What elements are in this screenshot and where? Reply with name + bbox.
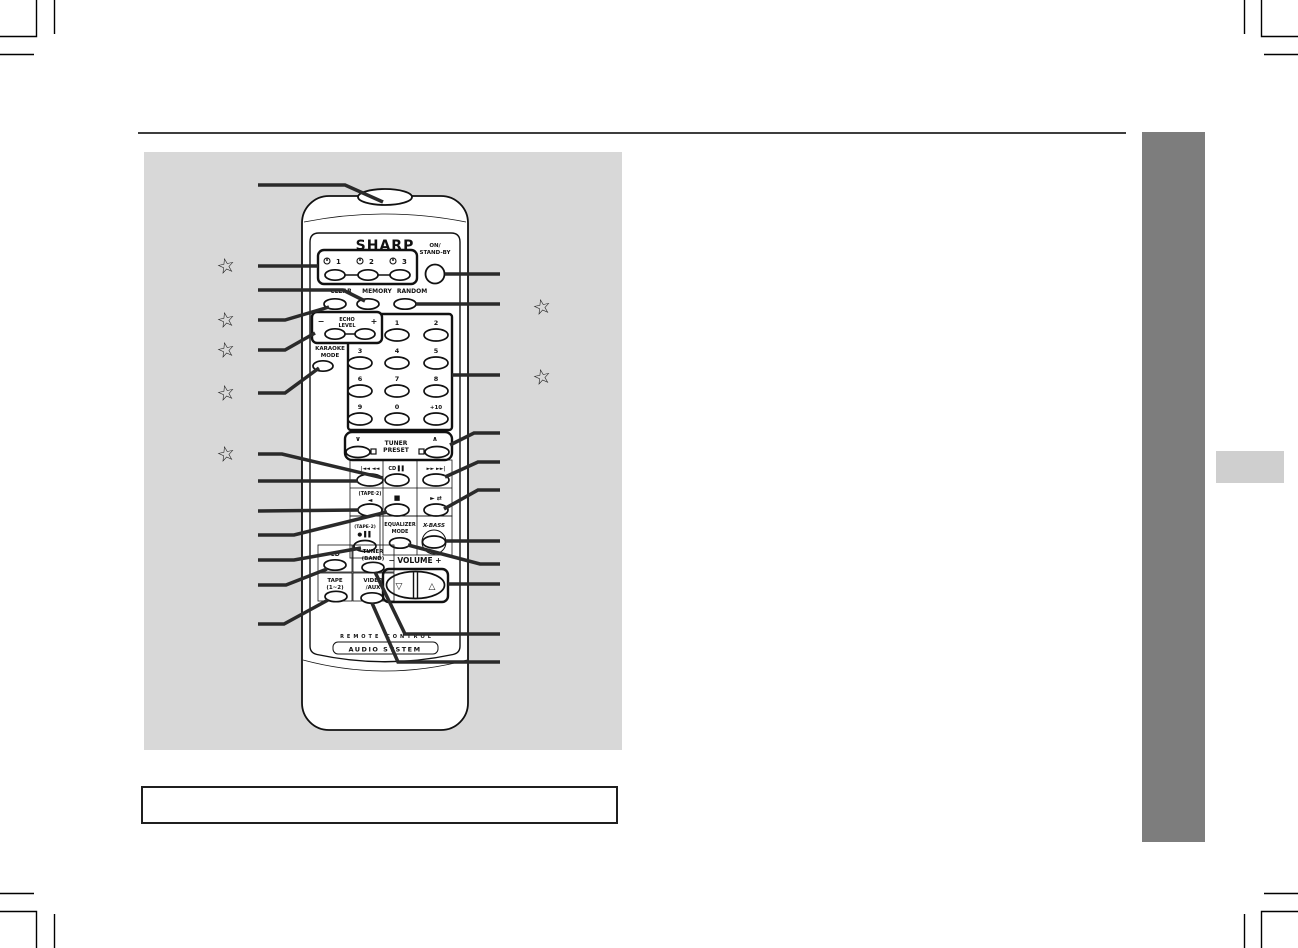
star-marker: ☆ xyxy=(214,336,237,363)
timer-2-label: 2 xyxy=(369,258,374,266)
timer-1-label: 1 xyxy=(336,258,341,266)
tuner-preset-label-line1: TUNER xyxy=(385,440,408,447)
star-marker: ☆ xyxy=(214,440,237,467)
cd-source-button[interactable] xyxy=(324,560,346,570)
crop-mark-top-right xyxy=(1245,0,1298,55)
tuner-preset-label-line2: PRESET xyxy=(383,447,410,454)
numpad-5-label: 5 xyxy=(434,347,439,355)
timer-1-button[interactable] xyxy=(325,270,345,280)
numpad-1-button[interactable] xyxy=(385,329,409,341)
timer-3-button[interactable] xyxy=(390,270,410,280)
tuner-source-label-line1: TUNER xyxy=(363,549,385,555)
stop-button[interactable] xyxy=(385,504,409,516)
caption-box xyxy=(141,786,618,824)
power-label-line2: STAND-BY xyxy=(420,250,452,256)
star-marker: ☆ xyxy=(214,252,237,279)
volume-down-triangle[interactable]: ▽ xyxy=(396,582,403,592)
record-pause-label: ● ▌▌ xyxy=(357,530,372,538)
ir-transmitter-bump xyxy=(358,189,412,205)
preset-up-notch xyxy=(419,449,424,454)
reverse-play-label: ◄ xyxy=(368,497,373,504)
star-marker: ☆ xyxy=(530,363,553,390)
video-aux-button[interactable] xyxy=(361,593,383,603)
echo-plus-label: + xyxy=(371,317,378,326)
power-label-line1: ON/ xyxy=(429,243,441,249)
numpad-6-label: 6 xyxy=(358,375,363,383)
stop-label: ■ xyxy=(394,494,401,502)
random-button[interactable] xyxy=(394,299,416,309)
tuner-source-label-line2: (BAND) xyxy=(362,556,385,562)
tape-source-button[interactable] xyxy=(325,591,347,601)
cd-pause-button[interactable] xyxy=(385,474,409,486)
preset-up-chevron: ∧ xyxy=(432,435,438,443)
star-marker: ☆ xyxy=(214,379,237,406)
equalizer-mode-button[interactable] xyxy=(390,538,411,548)
record-tape2-label: (TAPE·2) xyxy=(354,524,376,530)
numpad-4-button[interactable] xyxy=(385,357,409,369)
echo-up-button[interactable] xyxy=(355,329,375,339)
page-edge-tab xyxy=(1216,451,1284,483)
echo-down-button[interactable] xyxy=(325,329,345,339)
numpad-6-button[interactable] xyxy=(348,385,372,397)
echo-label-line2: LEVEL xyxy=(338,323,356,329)
numpad-3-button[interactable] xyxy=(348,357,372,369)
preset-down-chevron: ∨ xyxy=(355,435,361,443)
xbass-button[interactable] xyxy=(423,536,446,548)
equalizer-label-line1: EQUALIZER xyxy=(384,522,416,528)
skip-down-label: |◄◄ ◄◄ xyxy=(361,466,380,472)
remote-diagram-panel: SHARP 1 2 3 ON/ STAND-BY CLEAR xyxy=(144,152,622,750)
power-button[interactable] xyxy=(426,265,445,284)
volume-up-triangle[interactable]: △ xyxy=(429,582,436,592)
numpad-0-button[interactable] xyxy=(385,413,409,425)
tape-source-label-line2: (1~2) xyxy=(326,585,344,591)
skip-up-label: ►► ►►| xyxy=(427,466,446,472)
star-marker: ☆ xyxy=(214,306,237,333)
tuner-band-button[interactable] xyxy=(362,562,384,572)
numpad-4-label: 4 xyxy=(395,347,400,355)
memory-label: MEMORY xyxy=(362,288,392,295)
crop-mark-top-left xyxy=(0,0,55,55)
numpad-9-button[interactable] xyxy=(348,413,372,425)
numpad-0-label: 0 xyxy=(395,403,400,411)
numpad-9-label: 9 xyxy=(358,403,363,411)
chapter-side-tab xyxy=(1142,132,1205,842)
brand-logo: SHARP xyxy=(356,238,415,254)
karaoke-label-line2: MODE xyxy=(321,353,340,359)
preset-down-button[interactable] xyxy=(346,447,370,458)
forward-play-label: ► ⇄ xyxy=(430,495,442,502)
numpad-plus10-label: +10 xyxy=(430,405,442,411)
random-label: RANDOM xyxy=(397,288,427,295)
numpad-2-button[interactable] xyxy=(424,329,448,341)
karaoke-label-line1: KARAOKE xyxy=(315,346,345,352)
numpad-2-label: 2 xyxy=(434,319,439,327)
numpad-3-label: 3 xyxy=(358,347,363,355)
audio-system-text: AUDIO SYSTEM xyxy=(348,646,421,654)
volume-label: − VOLUME + xyxy=(388,556,441,565)
echo-minus-label: − xyxy=(318,317,325,326)
numpad-5-button[interactable] xyxy=(424,357,448,369)
numpad-7-label: 7 xyxy=(395,375,400,383)
remote-control-illustration: SHARP 1 2 3 ON/ STAND-BY CLEAR xyxy=(144,152,622,750)
numpad-plus10-button[interactable] xyxy=(424,413,448,425)
section-divider-rule xyxy=(138,132,1126,134)
numpad-8-button[interactable] xyxy=(424,385,448,397)
numpad-8-label: 8 xyxy=(434,375,439,383)
star-marker: ☆ xyxy=(530,293,553,320)
xbass-logo: X-BASS xyxy=(422,523,445,529)
forward-play-button[interactable] xyxy=(424,504,448,516)
crop-mark-bottom-left xyxy=(0,894,55,948)
callout-reverse-play xyxy=(258,510,359,511)
numpad-7-button[interactable] xyxy=(385,385,409,397)
preset-up-button[interactable] xyxy=(425,447,449,458)
numpad-1-label: 1 xyxy=(395,319,400,327)
video-source-label-line2: /AUX xyxy=(366,585,382,591)
cd-pause-label: CD ▌▌ xyxy=(388,465,405,472)
manual-page: SHARP 1 2 3 ON/ STAND-BY CLEAR xyxy=(0,0,1298,948)
equalizer-label-line2: MODE xyxy=(392,529,409,535)
timer-3-label: 3 xyxy=(402,258,407,266)
tape-source-label-line1: TAPE xyxy=(327,578,343,584)
crop-mark-bottom-right xyxy=(1245,894,1298,948)
timer-2-button[interactable] xyxy=(358,270,378,280)
preset-down-notch xyxy=(371,449,376,454)
